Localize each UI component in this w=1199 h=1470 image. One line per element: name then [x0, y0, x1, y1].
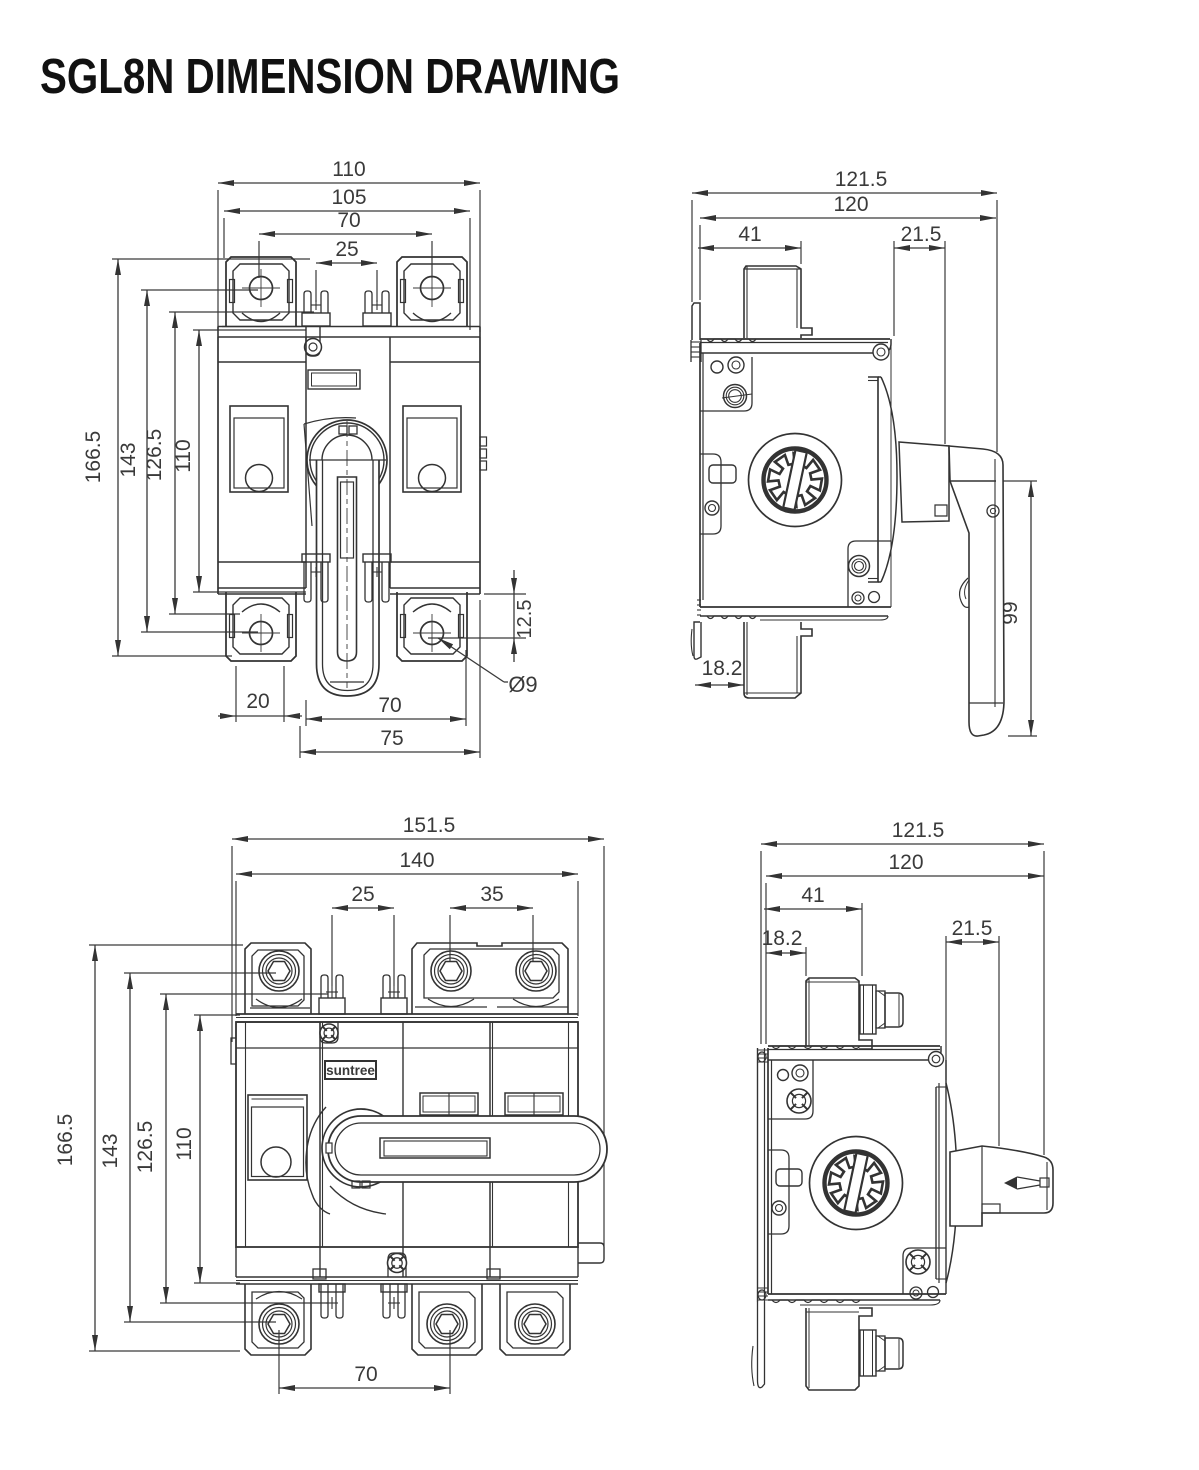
svg-text:110: 110	[332, 158, 365, 181]
svg-text:Ø9: Ø9	[508, 672, 537, 697]
svg-text:75: 75	[380, 727, 403, 750]
svg-text:35: 35	[480, 883, 503, 906]
svg-text:120: 120	[888, 851, 923, 874]
svg-text:70: 70	[378, 694, 401, 717]
svg-text:110: 110	[173, 1127, 196, 1160]
svg-text:41: 41	[801, 884, 824, 907]
svg-text:70: 70	[354, 1363, 377, 1386]
svg-text:151.5: 151.5	[403, 814, 456, 837]
svg-text:18.2: 18.2	[702, 657, 743, 680]
svg-text:suntree: suntree	[326, 1063, 375, 1078]
svg-text:140: 140	[399, 849, 434, 872]
svg-text:110: 110	[172, 439, 195, 472]
svg-text:166.5: 166.5	[54, 1114, 77, 1167]
svg-text:25: 25	[335, 238, 358, 261]
svg-text:12.5: 12.5	[514, 600, 536, 639]
svg-text:21.5: 21.5	[901, 223, 942, 246]
svg-text:25: 25	[351, 883, 374, 906]
svg-text:18.2: 18.2	[762, 927, 803, 950]
svg-text:121.5: 121.5	[835, 168, 888, 191]
svg-text:SGL8N DIMENSION DRAWING: SGL8N DIMENSION DRAWING	[40, 50, 620, 104]
svg-text:143: 143	[99, 1133, 122, 1168]
svg-text:121.5: 121.5	[892, 819, 945, 842]
svg-text:41: 41	[738, 223, 761, 246]
svg-text:20: 20	[246, 690, 269, 713]
svg-text:143: 143	[117, 442, 140, 477]
svg-text:126.5: 126.5	[143, 429, 166, 482]
svg-text:126.5: 126.5	[134, 1121, 157, 1174]
svg-text:120: 120	[833, 193, 868, 216]
svg-text:105: 105	[331, 186, 366, 209]
svg-text:166.5: 166.5	[82, 431, 105, 484]
svg-text:21.5: 21.5	[952, 917, 993, 940]
svg-text:70: 70	[337, 209, 360, 232]
